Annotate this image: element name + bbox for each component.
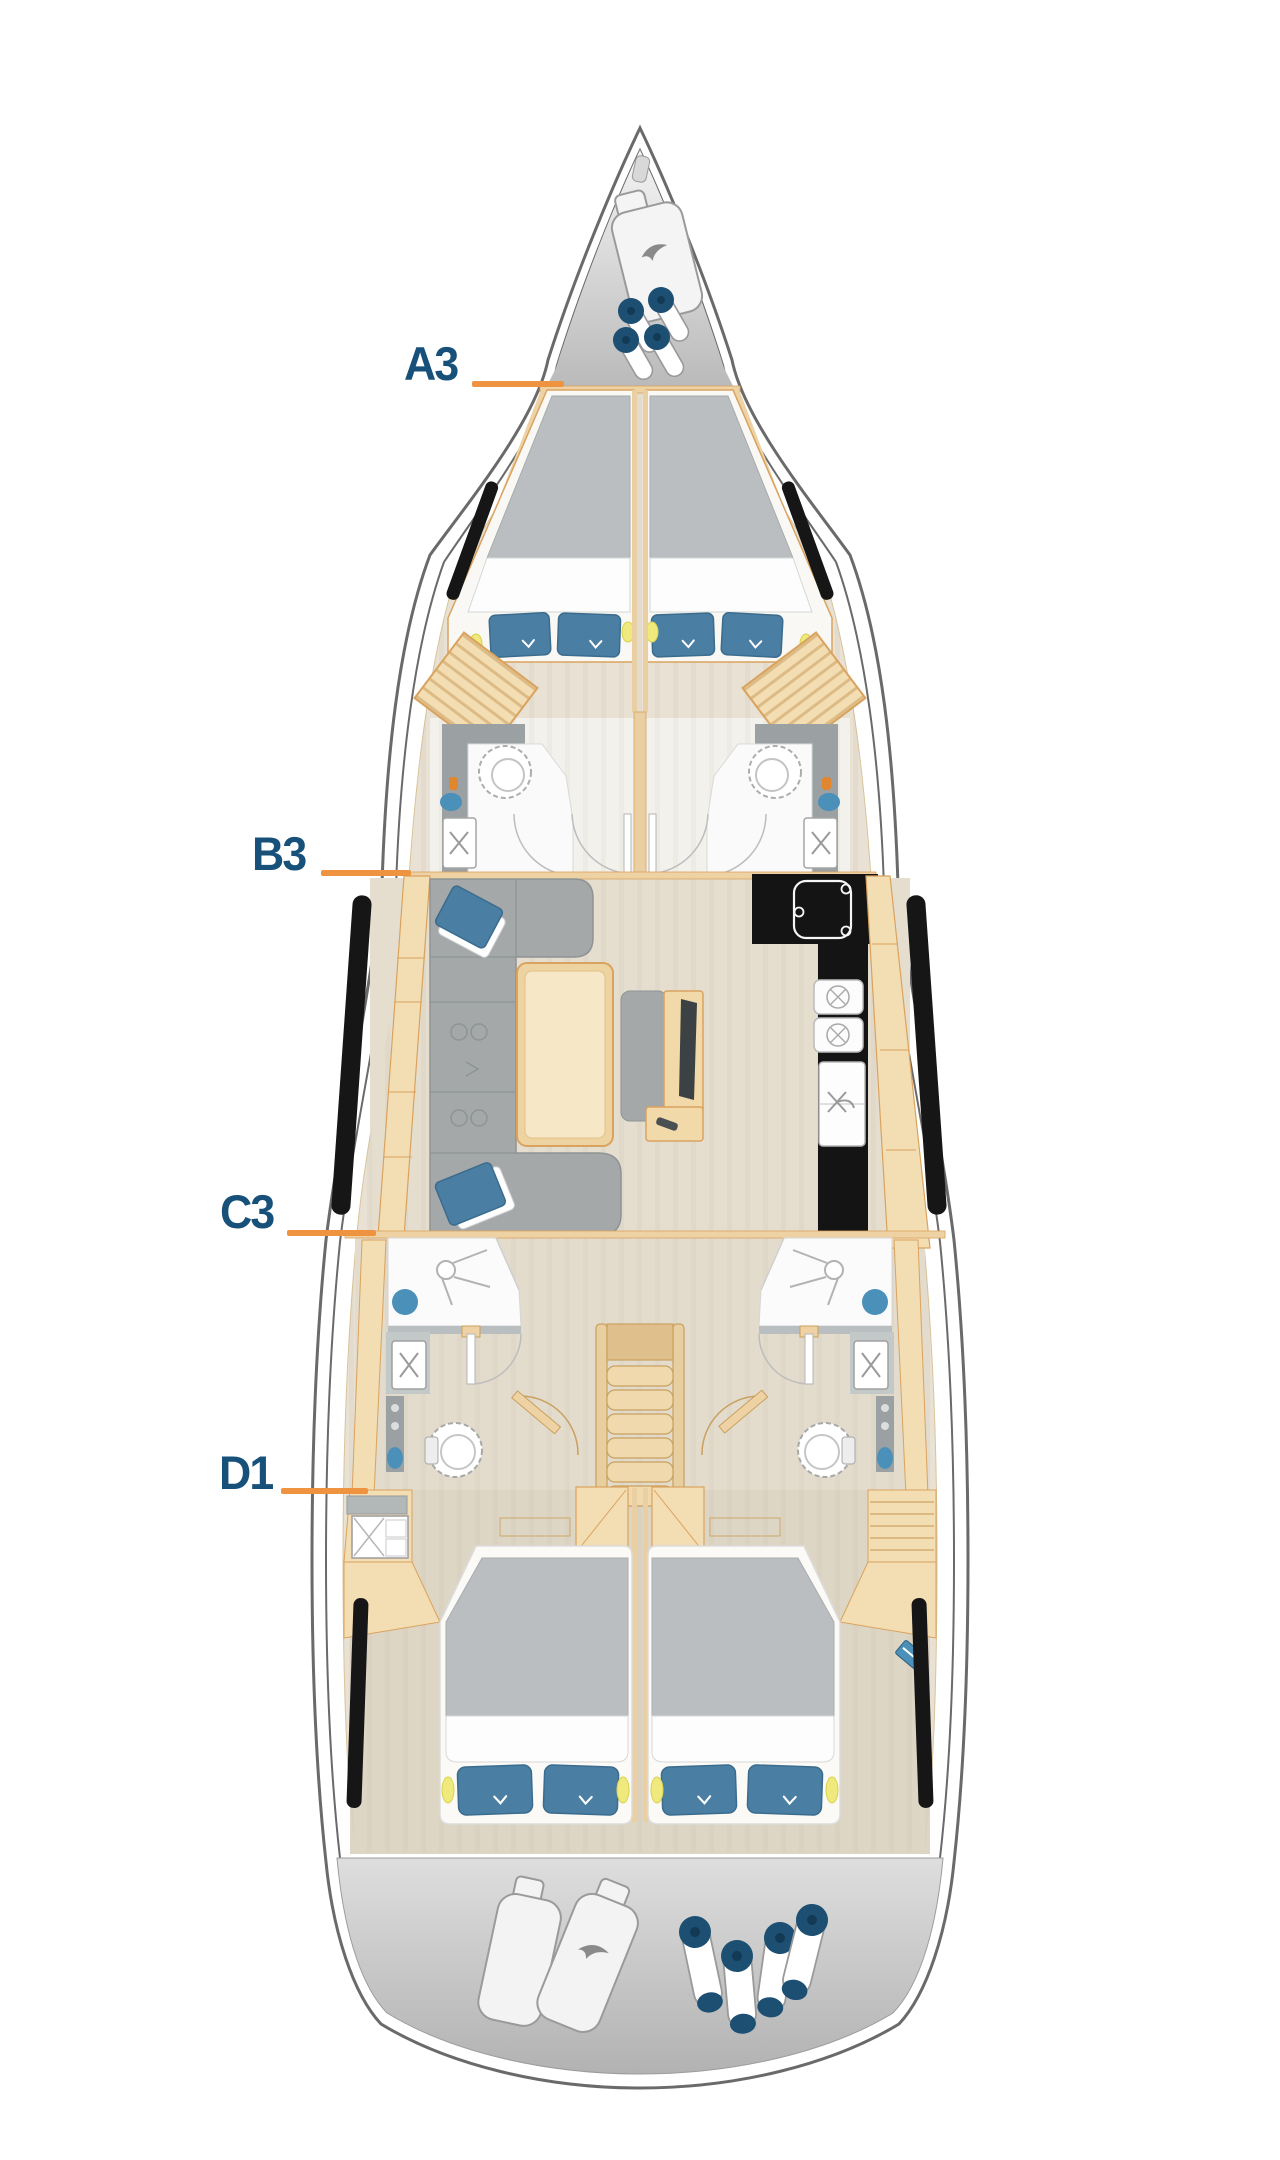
bulkhead-c3 (345, 1231, 945, 1238)
basin-blue (818, 793, 840, 811)
cabin-label-a3: A3 (404, 340, 457, 387)
basin-blue (862, 1289, 888, 1315)
stairs-landing (607, 1324, 673, 1360)
cabin-label-b3: B3 (252, 830, 305, 877)
galley-sink-icon (819, 1062, 865, 1146)
leader-line-b3 (321, 870, 411, 876)
nav-seat (621, 991, 667, 1121)
center-divider (632, 390, 637, 712)
foredeck (545, 150, 735, 390)
nav-station (621, 991, 703, 1141)
leader-line-d1 (281, 1488, 368, 1494)
center-divider-2 (643, 390, 648, 712)
basin-blue (440, 793, 462, 811)
cabin-label-c3: C3 (220, 1188, 273, 1235)
sheet-port-fwd (468, 558, 630, 612)
leader-line-a3 (472, 381, 564, 387)
mattress-starboard-aft (652, 1558, 834, 1716)
sheet-starboard-aft (652, 1716, 834, 1762)
yacht-floorplan-page: A3 B3 C3 D1 (0, 0, 1280, 2160)
fixture-orange (449, 777, 458, 790)
nav-screen (679, 999, 697, 1100)
mattress-port-aft (446, 1558, 628, 1716)
fixture-orange (822, 777, 831, 790)
leader-line-c3 (287, 1230, 376, 1236)
basin-blue (392, 1289, 418, 1315)
sheet-starboard-fwd (650, 558, 812, 612)
yacht-floorplan (0, 0, 1280, 2160)
sheet-port-aft (446, 1716, 628, 1762)
center-wall (634, 712, 646, 874)
cabin-label-d1: D1 (219, 1449, 272, 1496)
